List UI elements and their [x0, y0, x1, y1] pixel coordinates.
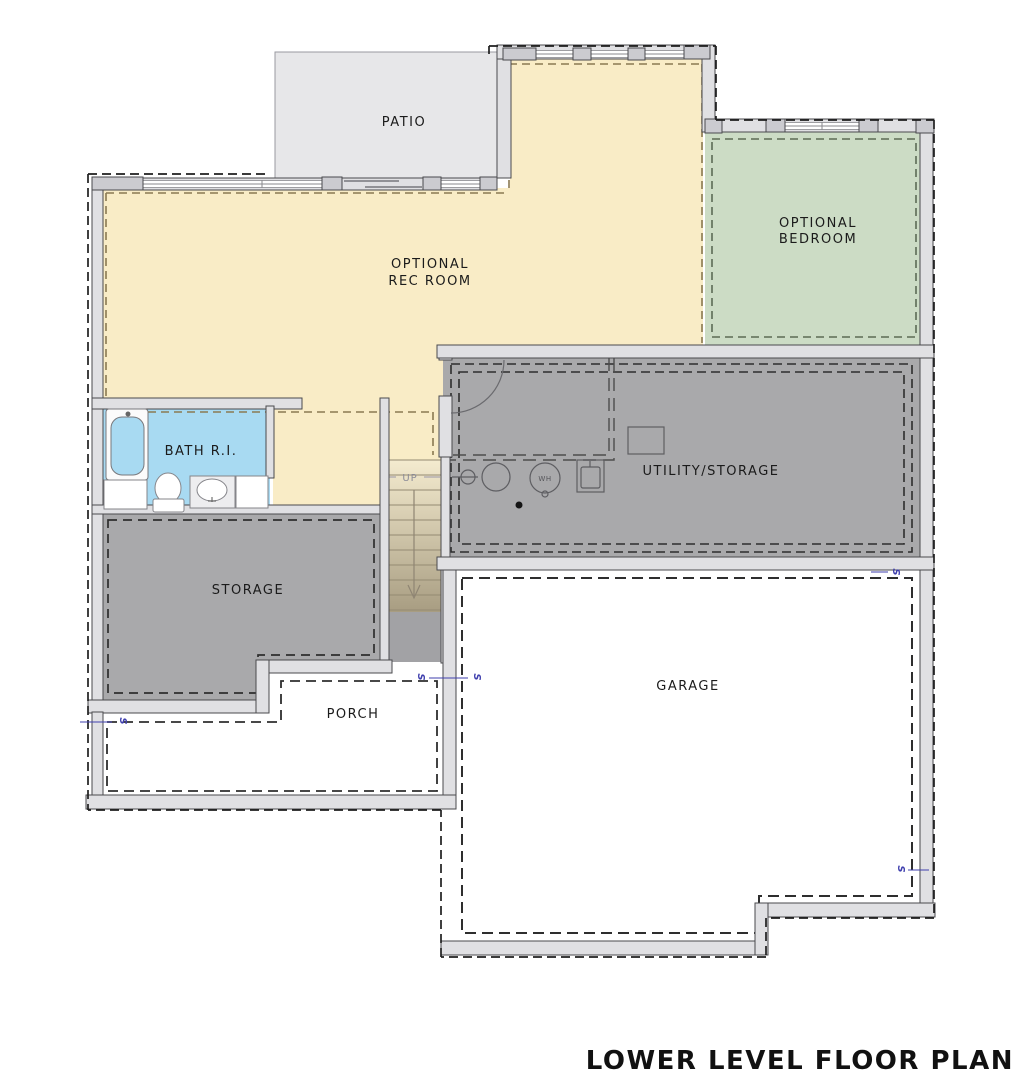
floor-plan-canvas: S S S S S PATIO OPTIONAL REC ROOM OPTION… [0, 0, 1023, 1080]
garage-label: GARAGE [656, 679, 719, 694]
wall [443, 558, 456, 808]
wall [256, 660, 392, 673]
wall-cap [480, 177, 497, 190]
section-marker: S [415, 673, 426, 680]
bathtub-basin [111, 417, 144, 475]
bedroom-label-line2: BEDROOM [779, 232, 857, 247]
stair-landing [389, 612, 441, 662]
wall [439, 396, 452, 457]
wall-cap [705, 119, 722, 133]
stairs [389, 398, 441, 662]
utility-label: UTILITY/STORAGE [642, 464, 779, 479]
bath-label: BATH R.I. [165, 444, 238, 459]
wall [437, 557, 934, 570]
wall-cap [684, 45, 710, 59]
wall [920, 131, 933, 905]
wall-cap [766, 119, 785, 132]
wall-cap [573, 48, 591, 60]
wall [441, 941, 767, 955]
rec-room-label-line1: OPTIONAL [391, 257, 469, 272]
bedroom-label-line1: OPTIONAL [779, 216, 857, 231]
room-utility [443, 357, 920, 560]
wall [497, 45, 511, 178]
wall [92, 178, 103, 712]
wall-cap [628, 48, 645, 60]
wall [437, 345, 934, 358]
plan-title: LOWER LEVEL FLOOR PLAN [586, 1046, 1014, 1076]
section-marker: S [890, 568, 901, 575]
wall [266, 406, 274, 478]
section-marker: S [895, 865, 906, 872]
wall-cap [423, 177, 441, 190]
hallway-floor [273, 398, 380, 508]
stairs-up-label: UP [402, 473, 417, 484]
toilet-tank [153, 499, 184, 512]
bathtub-faucet [126, 412, 131, 417]
bath-cabinet-right [236, 476, 268, 508]
wall [755, 903, 935, 917]
floor-plan-drawing: S S S S S PATIO OPTIONAL REC ROOM OPTION… [0, 0, 1023, 1080]
wall-cap [916, 119, 934, 133]
rec-room-label-line2: REC ROOM [388, 274, 471, 289]
wall-cap [322, 177, 342, 190]
porch-label: PORCH [327, 707, 380, 722]
wall [380, 398, 389, 663]
patio-label: PATIO [382, 115, 426, 130]
storage-label: STORAGE [212, 583, 284, 598]
wall-cap [92, 177, 143, 190]
bath-cabinet-left [104, 480, 147, 509]
wall-cap [503, 48, 536, 60]
wall-cap [859, 119, 878, 132]
water-heater-label: WH [538, 475, 551, 483]
section-marker: S [471, 673, 482, 680]
wall [92, 712, 103, 795]
wall [256, 660, 269, 713]
section-marker: S [117, 717, 128, 724]
wall [88, 700, 269, 713]
room-garage [455, 570, 920, 941]
floor-drain [516, 502, 523, 509]
wall [86, 795, 456, 809]
